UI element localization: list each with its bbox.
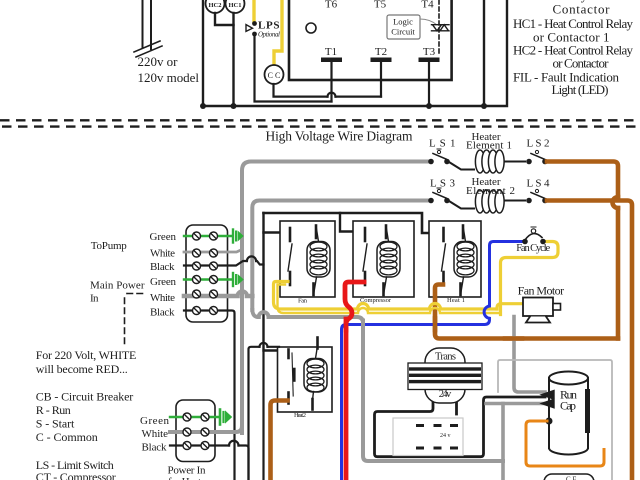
- svg-text:24v: 24v: [439, 389, 452, 400]
- svg-text:Black: Black: [150, 306, 175, 318]
- svg-text:L S 3: L S 3: [430, 178, 456, 190]
- svg-text:White: White: [142, 428, 169, 440]
- svg-text:Optional: Optional: [258, 30, 280, 38]
- svg-text:In: In: [90, 293, 99, 305]
- svg-text:Circuit: Circuit: [391, 27, 415, 37]
- svg-text:Trans: Trans: [435, 351, 456, 362]
- svg-text:or Contactor: or Contactor: [553, 56, 610, 71]
- svg-text:Main Power: Main Power: [90, 279, 145, 291]
- svg-text:ToPump: ToPump: [91, 240, 128, 252]
- svg-text:Black: Black: [142, 441, 168, 453]
- svg-text:Cap: Cap: [560, 399, 576, 413]
- svg-text:For 220 Volt, WHITE: For 220 Volt, WHITE: [36, 348, 137, 362]
- svg-text:Fan Cycle: Fan Cycle: [516, 243, 550, 254]
- svg-text:Fan Motor: Fan Motor: [518, 284, 565, 298]
- svg-text:S - Start: S - Start: [36, 417, 75, 431]
- svg-text:220v or: 220v or: [138, 54, 179, 69]
- svg-text:White: White: [150, 248, 175, 260]
- svg-text:Contactor: Contactor: [553, 1, 611, 16]
- svg-text:Heat 1: Heat 1: [447, 297, 465, 304]
- svg-text:T5: T5: [374, 0, 387, 11]
- svg-text:T3: T3: [423, 46, 436, 58]
- svg-text:CT - Compressor: CT - Compressor: [36, 470, 116, 480]
- svg-text:for Heat: for Heat: [168, 476, 201, 480]
- svg-text:Heat 2: Heat 2: [294, 412, 306, 419]
- svg-text:Element 2: Element 2: [466, 185, 515, 197]
- svg-text:C - Common: C - Common: [36, 430, 98, 444]
- svg-text:Light (LED): Light (LED): [552, 82, 609, 97]
- svg-text:T6: T6: [325, 0, 338, 11]
- svg-text:L S 4: L S 4: [527, 177, 551, 189]
- svg-text:T4: T4: [421, 0, 434, 11]
- svg-text:CB - Circuit Breaker: CB - Circuit Breaker: [36, 390, 134, 404]
- svg-text:High Voltage Wire Diagram: High Voltage Wire Diagram: [266, 129, 413, 144]
- svg-text:Logic: Logic: [393, 17, 413, 27]
- svg-text:HC2: HC2: [209, 2, 222, 9]
- svg-text:Green: Green: [150, 276, 177, 288]
- svg-text:L S 1: L S 1: [429, 137, 456, 149]
- svg-text:White: White: [150, 292, 175, 304]
- svg-text:C C: C C: [268, 71, 281, 80]
- svg-text:HC1: HC1: [229, 2, 242, 9]
- svg-text:will become RED...: will become RED...: [36, 362, 128, 376]
- svg-text:24 v: 24 v: [440, 433, 451, 439]
- svg-text:T1: T1: [325, 46, 337, 58]
- svg-text:Black: Black: [150, 261, 175, 273]
- svg-text:Power In: Power In: [168, 465, 207, 477]
- svg-text:L S 2: L S 2: [527, 138, 550, 150]
- svg-text:Element 1: Element 1: [466, 140, 512, 152]
- svg-text:T2: T2: [375, 46, 387, 58]
- svg-text:Fan: Fan: [298, 297, 308, 304]
- svg-text:120v model: 120v model: [138, 70, 200, 85]
- svg-text:Green: Green: [150, 231, 177, 243]
- svg-text:R - Run: R - Run: [36, 403, 71, 417]
- svg-text:C F: C F: [566, 476, 576, 480]
- svg-text:Green: Green: [140, 415, 170, 427]
